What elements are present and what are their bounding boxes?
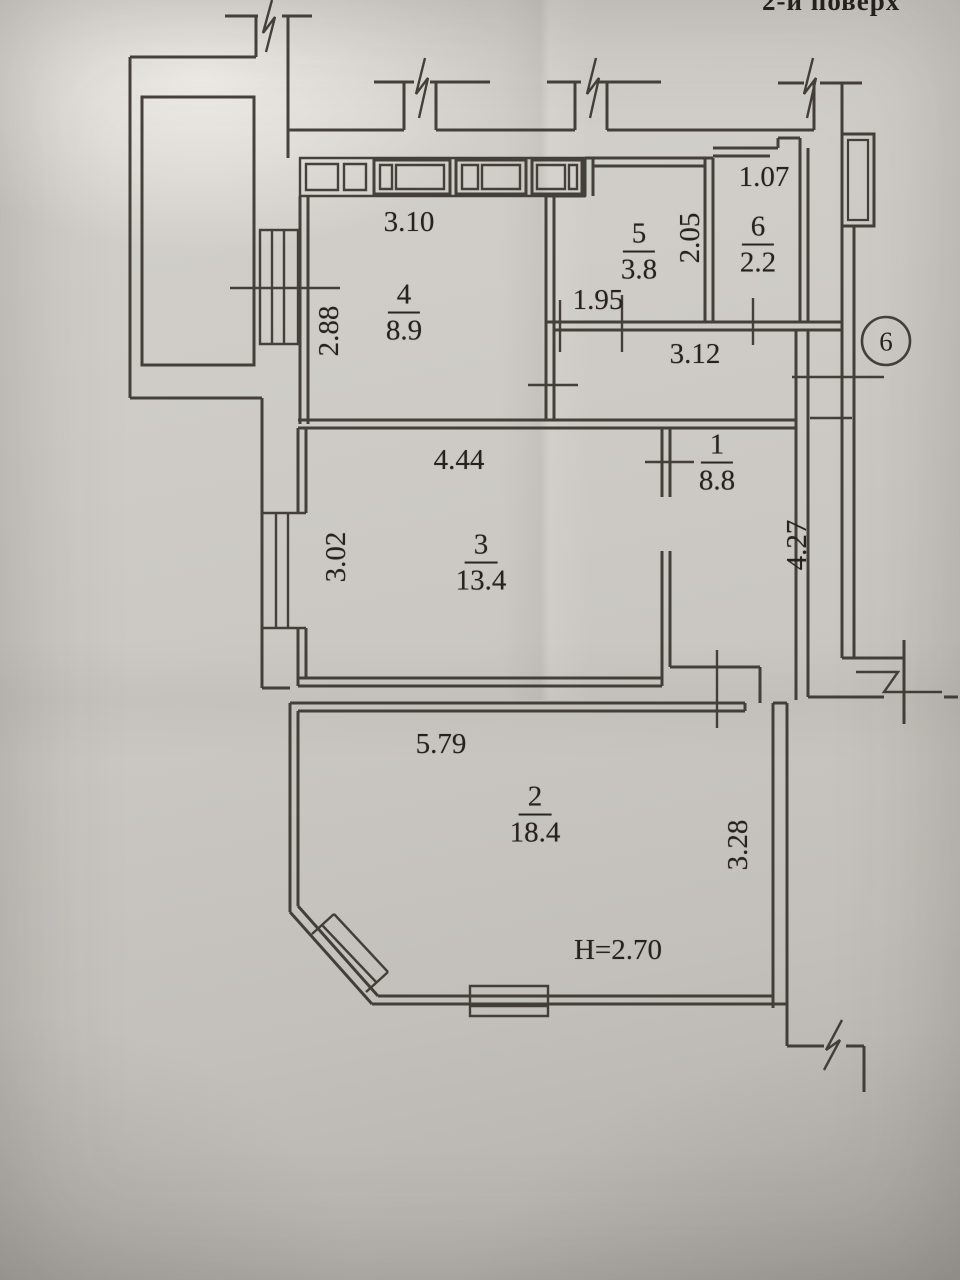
dim-room3-width: 4.44 <box>434 445 485 475</box>
window-bottom <box>470 986 548 1016</box>
room2-walls <box>290 703 787 1008</box>
dim-room4-width: 3.10 <box>384 207 435 237</box>
room-area: 13.4 <box>456 564 507 597</box>
room-area: 8.8 <box>699 464 735 497</box>
dim-corridor-width: 3.12 <box>670 339 721 369</box>
dim-left-height: 2.88 <box>314 306 344 357</box>
dim-room5-width: 1.95 <box>573 285 624 315</box>
dim-ceiling-height: H=2.70 <box>574 935 662 965</box>
dim-room2-width: 5.79 <box>416 729 467 759</box>
room-number: 1 <box>701 429 734 464</box>
room-area: 3.8 <box>621 253 657 286</box>
room-label-5: 5 3.8 <box>621 218 657 287</box>
room-label-2: 2 18.4 <box>510 781 561 850</box>
room-area: 18.4 <box>510 816 561 849</box>
bottom-right-wall <box>787 1008 864 1092</box>
room-label-4: 4 8.9 <box>386 279 422 348</box>
dim-room6-width: 1.07 <box>739 162 790 192</box>
dim-room5-height: 2.05 <box>675 213 705 264</box>
wall-break-icon <box>856 672 942 692</box>
stair-core <box>142 97 254 365</box>
room-number: 6 <box>742 211 775 246</box>
room-label-6: 6 2.2 <box>740 211 776 280</box>
duct-shaft <box>842 134 874 226</box>
right-wall <box>792 134 958 724</box>
floor-title: 2-й поверх <box>762 0 900 17</box>
room-label-3: 3 13.4 <box>456 529 507 598</box>
room-label-1: 1 8.8 <box>699 429 735 498</box>
outer-walls <box>130 16 312 688</box>
top-wall <box>288 82 862 134</box>
wall-break-icon <box>824 1020 842 1070</box>
room-area: 8.9 <box>386 314 422 347</box>
floor-plan-photo: 2-й поверх 3.10 2.88 2.05 1.07 1.95 3.12… <box>0 0 960 1280</box>
floorplan-drawing <box>0 0 960 1280</box>
window-band <box>300 158 585 196</box>
room-number: 5 <box>623 218 656 253</box>
dim-hall-length: 4.27 <box>782 520 812 571</box>
dimension-tick <box>645 462 717 728</box>
dim-room3-height: 3.02 <box>321 532 351 583</box>
room-number: 4 <box>388 279 421 314</box>
room-number: 3 <box>465 529 498 564</box>
room-number: 2 <box>519 781 552 816</box>
window-left <box>262 513 306 628</box>
wall-break-icon <box>263 0 816 118</box>
dim-room2-height: 3.28 <box>723 820 753 871</box>
room-area: 2.2 <box>740 246 776 279</box>
dimension-tick <box>792 377 884 418</box>
axis-marker-label: 6 <box>879 327 893 358</box>
